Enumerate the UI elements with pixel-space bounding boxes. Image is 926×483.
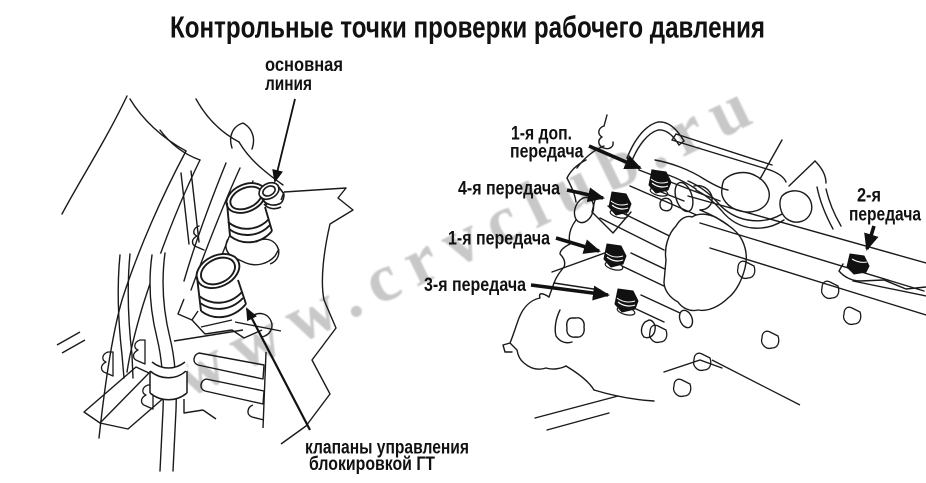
svg-text:линия: линия <box>265 74 312 95</box>
svg-text:передача: передача <box>510 142 584 163</box>
svg-text:2-я: 2-я <box>857 186 881 207</box>
svg-text:1-я передача: 1-я передача <box>448 229 550 250</box>
svg-text:передача: передача <box>849 205 921 226</box>
svg-text:3-я передача: 3-я передача <box>424 275 526 296</box>
svg-text:Контрольные точки проверки раб: Контрольные точки проверки рабочего давл… <box>170 10 765 45</box>
svg-text:4-я передача: 4-я передача <box>458 179 560 200</box>
svg-text:основная: основная <box>265 55 343 76</box>
svg-text:блокировкой ГТ: блокировкой ГТ <box>309 454 435 475</box>
